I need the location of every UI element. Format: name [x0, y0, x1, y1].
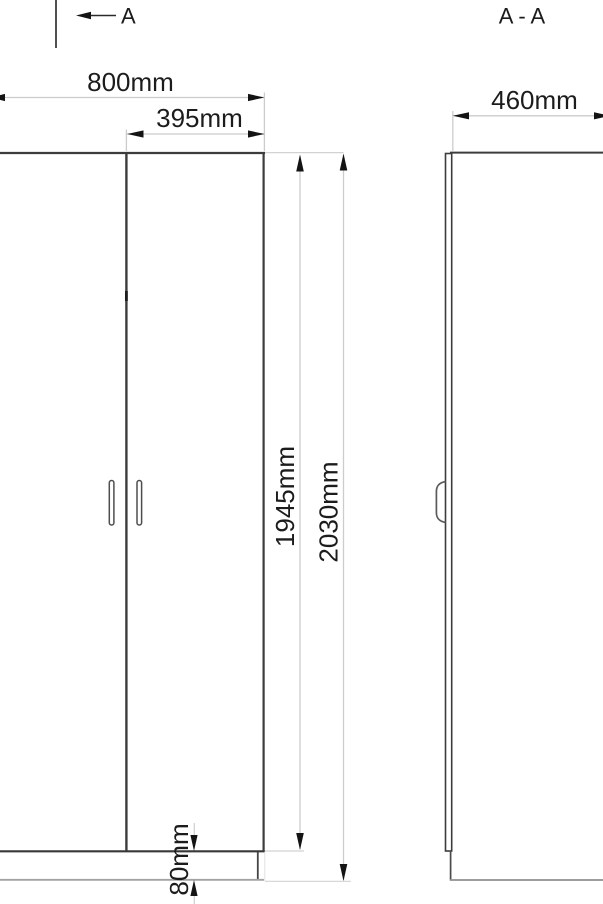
svg-text:A: A: [121, 4, 136, 29]
svg-text:395mm: 395mm: [156, 103, 243, 133]
svg-text:1945mm: 1945mm: [270, 446, 300, 547]
svg-text:A - A: A - A: [499, 4, 546, 29]
svg-text:2030mm: 2030mm: [314, 461, 344, 562]
svg-text:800mm: 800mm: [87, 67, 174, 97]
svg-text:460mm: 460mm: [491, 85, 578, 115]
svg-text:80mm: 80mm: [164, 823, 194, 895]
